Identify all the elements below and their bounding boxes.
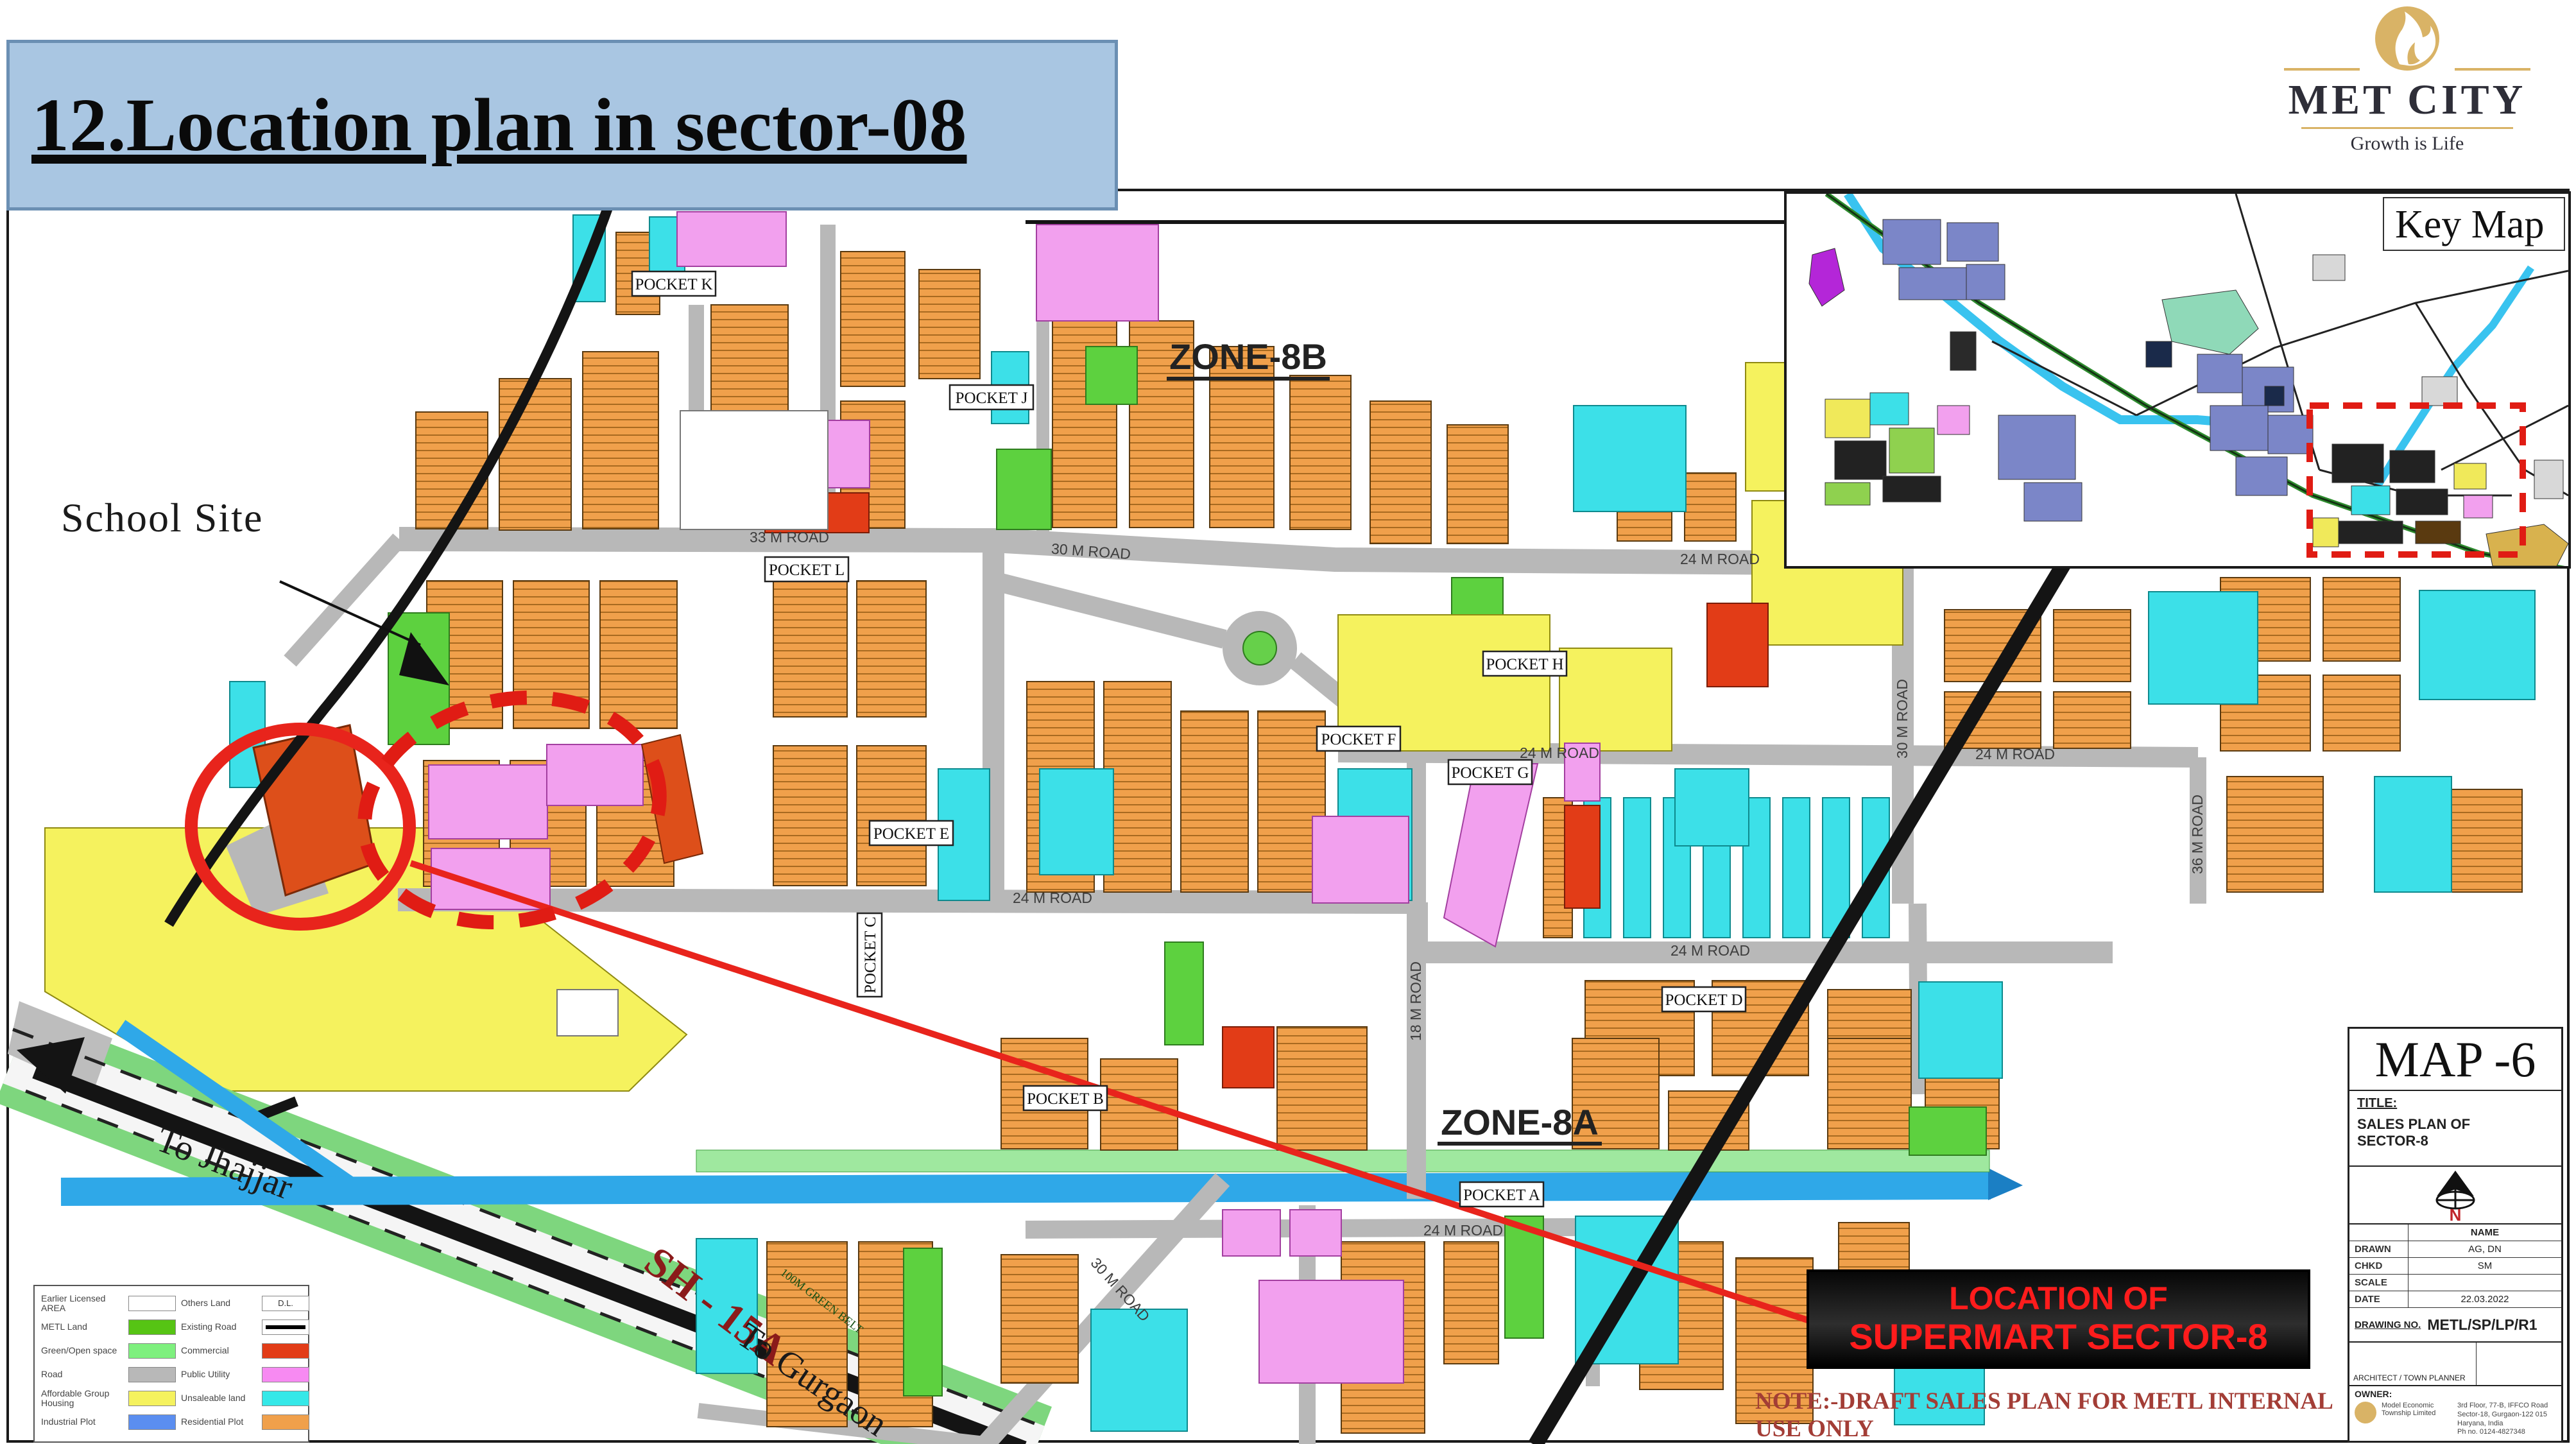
- key-map-drawing: Key Map: [1787, 194, 2568, 566]
- met-city-logo: MET CITY Growth is Life: [2269, 3, 2545, 155]
- legend-label: Public Utility: [181, 1370, 257, 1379]
- zone-8b-label: ZONE-8B: [1167, 336, 1330, 379]
- drawing-title: SALES PLAN OF SECTOR-8: [2357, 1116, 2554, 1150]
- logo-rule-right: [2455, 68, 2530, 71]
- pocket-label: POCKET D: [1662, 987, 1746, 1011]
- title-block-rows: DRAWNAG, DNCHKDSMSCALEDATE22.03.2022: [2349, 1241, 2561, 1308]
- roundabout: [1223, 611, 1297, 685]
- legend-label: Residential Plot: [181, 1417, 257, 1427]
- key-map-title: Key Map: [2383, 198, 2564, 250]
- road-name-label: 24 M ROAD: [1975, 746, 2055, 762]
- road-name-label: 24 M ROAD: [1520, 744, 1599, 761]
- supermart-location-callout: LOCATION OF SUPERMART SECTOR-8: [1807, 1269, 2310, 1369]
- owner-address: 3rd Floor, 77-B, IFFCO RoadSector-18, Gu…: [2457, 1402, 2548, 1437]
- svg-text:POCKET L: POCKET L: [769, 562, 845, 579]
- pocket-label: POCKET E: [870, 821, 953, 845]
- draft-note: NOTE:-DRAFT SALES PLAN FOR METL INTERNAL…: [1755, 1388, 2371, 1443]
- map-legend: Earlier Licensed AREAOthers LandD.L.METL…: [33, 1285, 309, 1443]
- road-name-label: 33 M ROAD: [750, 529, 829, 546]
- svg-text:N: N: [2450, 1205, 2462, 1222]
- pocket-label: POCKET L: [765, 557, 848, 581]
- legend-swatch: [262, 1391, 309, 1406]
- svg-text:POCKET K: POCKET K: [635, 276, 712, 293]
- title-block-row: CHKDSM: [2349, 1258, 2561, 1275]
- legend-swatch: D.L.: [262, 1296, 309, 1311]
- legend-label: Road: [41, 1370, 123, 1379]
- road-name-label: 18 M ROAD: [1407, 961, 1424, 1041]
- svg-text:Key Map: Key Map: [2395, 203, 2544, 246]
- school-site-label: School Site: [61, 495, 263, 540]
- road-name-label: 30 M ROAD: [1894, 679, 1911, 759]
- title-block-row: DATE22.03.2022: [2349, 1291, 2561, 1308]
- svg-text:ZONE-8B: ZONE-8B: [1169, 336, 1327, 377]
- legend-label: Existing Road: [181, 1322, 257, 1332]
- page-title: 12.Location plan in sector-08: [31, 82, 966, 169]
- legend-label: Others Land: [181, 1298, 257, 1308]
- road-name-label: 24 M ROAD: [1680, 551, 1760, 567]
- legend-label: Affordable Group Housing: [41, 1389, 123, 1407]
- legend-swatch: [128, 1391, 176, 1406]
- legend-label: Green/Open space: [41, 1346, 123, 1355]
- legend-label: Unsaleable land: [181, 1393, 257, 1403]
- legend-swatch: [262, 1414, 309, 1430]
- title-label: TITLE:: [2357, 1096, 2554, 1111]
- owner-section: OWNER: Model Economic Township Limited 3…: [2349, 1386, 2561, 1440]
- svg-text:ZONE-8A: ZONE-8A: [1441, 1102, 1599, 1142]
- title-block-row: SCALE: [2349, 1275, 2561, 1291]
- logo-underline: [2301, 127, 2513, 129]
- north-compass: N: [2349, 1167, 2561, 1225]
- pocket-label: POCKET G: [1448, 760, 1532, 784]
- svg-text:POCKET D: POCKET D: [1665, 992, 1742, 1009]
- drawing-title-block: MAP -6 TITLE: SALES PLAN OF SECTOR-8 N N…: [2348, 1027, 2563, 1443]
- zone-8a-label: ZONE-8A: [1438, 1102, 1602, 1144]
- legend-label: Industrial Plot: [41, 1417, 123, 1427]
- pocket-label: POCKET J: [950, 385, 1033, 409]
- logo-brand: MET CITY: [2288, 76, 2527, 125]
- map-number: MAP -6: [2349, 1029, 2561, 1091]
- svg-text:POCKET H: POCKET H: [1486, 656, 1563, 673]
- svg-text:POCKET G: POCKET G: [1451, 764, 1529, 782]
- flame-icon: [2369, 3, 2446, 80]
- svg-text:POCKET E: POCKET E: [873, 825, 949, 843]
- road-name-label: 36 M ROAD: [2189, 795, 2206, 874]
- legend-label: Commercial: [181, 1346, 257, 1355]
- legend-swatch: [128, 1296, 176, 1311]
- table-header-row: NAME: [2349, 1225, 2561, 1241]
- architect-row: ARCHITECT / TOWN PLANNER: [2349, 1343, 2561, 1386]
- road-name-label: 24 M ROAD: [1670, 942, 1750, 959]
- key-map-inset: Key Map: [1784, 191, 2571, 569]
- legend-swatch: [128, 1319, 176, 1335]
- pocket-label: POCKET K: [632, 271, 716, 296]
- svg-text:POCKET C: POCKET C: [862, 916, 879, 993]
- slide-title-bar: 12.Location plan in sector-08: [6, 40, 1118, 211]
- legend-swatch: [128, 1343, 176, 1359]
- svg-text:POCKET F: POCKET F: [1321, 731, 1396, 748]
- svg-text:POCKET J: POCKET J: [956, 390, 1028, 407]
- legend-swatch: [262, 1319, 309, 1335]
- name-header: NAME: [2409, 1227, 2561, 1238]
- legend-label: Earlier Licensed AREA: [41, 1294, 123, 1312]
- legend-label: METL Land: [41, 1322, 123, 1332]
- legend-swatch: [262, 1367, 309, 1382]
- title-block-row: DRAWNAG, DN: [2349, 1241, 2561, 1258]
- key-map-clusters: [1809, 219, 2568, 566]
- legend-swatch: [128, 1367, 176, 1382]
- pocket-label: POCKET C: [857, 913, 882, 997]
- logo-tagline: Growth is Life: [2351, 133, 2464, 155]
- legend-swatch: [128, 1414, 176, 1430]
- drawing-no-row: DRAWING NO. METL/SP/LP/R1: [2349, 1308, 2561, 1343]
- road-name-label: 24 M ROAD: [1013, 890, 1092, 906]
- legend-swatch: [262, 1343, 309, 1359]
- svg-text:POCKET A: POCKET A: [1463, 1187, 1540, 1204]
- road-name-label: 24 M ROAD: [1423, 1222, 1503, 1239]
- pocket-label: POCKET H: [1483, 651, 1567, 676]
- svg-text:POCKET B: POCKET B: [1027, 1090, 1104, 1108]
- pocket-label: POCKET A: [1460, 1182, 1543, 1207]
- pocket-label: POCKET B: [1024, 1086, 1107, 1110]
- pocket-label: POCKET F: [1317, 726, 1400, 751]
- logo-rule-left: [2284, 68, 2360, 71]
